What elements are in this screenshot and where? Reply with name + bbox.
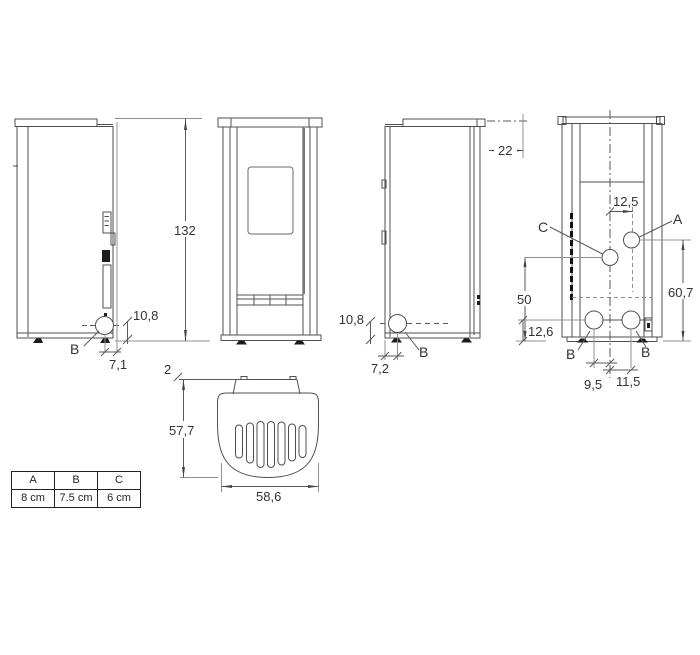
glass-door-window xyxy=(248,167,293,234)
dim-2-label: 2 xyxy=(164,362,171,377)
port-a-circle xyxy=(624,232,640,248)
port-c-circle xyxy=(602,250,618,266)
dim-10-8-left-label: 10,8 xyxy=(133,308,158,323)
spec-col-a-header: A xyxy=(12,472,55,490)
technical-drawing-canvas: 132 10,8 7,1 B xyxy=(0,0,700,655)
stove-feet xyxy=(236,341,305,345)
dim-50-label: 50 xyxy=(517,292,531,307)
dim-60-7-label: 60,7 xyxy=(668,285,693,300)
flue-outlet-circle-right xyxy=(389,315,407,333)
dim-7-1-label: 7,1 xyxy=(109,357,127,372)
rear-view: 12,5 A C 50 60,7 xyxy=(514,110,699,392)
spec-col-c-value: 6 cm xyxy=(98,490,141,508)
top-view: 2 57,7 58,6 xyxy=(164,362,319,504)
spec-col-c-header: C xyxy=(98,472,141,490)
side-view-left: 132 10,8 7,1 B xyxy=(13,119,210,373)
dim-12-5-label: 12,5 xyxy=(613,194,638,209)
dim-57-7-label: 57,7 xyxy=(169,423,194,438)
front-view xyxy=(218,118,322,345)
technical-drawing-page: 132 10,8 7,1 B xyxy=(0,0,700,655)
port-b-label-left: B xyxy=(70,341,79,357)
dim-58-6-label: 58,6 xyxy=(256,489,281,504)
spec-table-value-row: 8 cm 7.5 cm 6 cm xyxy=(12,490,141,508)
dimension-2: 2 xyxy=(164,362,252,381)
spec-table-header-row: A B C xyxy=(12,472,141,490)
port-b-rear-left-callout: B xyxy=(566,331,590,362)
dimension-10-8-left: 10,8 xyxy=(123,308,158,344)
spec-col-b-value: 7.5 cm xyxy=(55,490,98,508)
port-b-rear-left-label: B xyxy=(566,346,575,362)
port-b-circle-right xyxy=(622,311,640,329)
port-b-callout-right: B xyxy=(405,332,428,360)
dimension-58-6: 58,6 xyxy=(222,463,319,504)
air-grille-slots xyxy=(236,422,307,468)
dim-11-5-label: 11,5 xyxy=(616,374,640,389)
dim-7-2-label: 7,2 xyxy=(371,361,389,376)
port-b-circle-left xyxy=(585,311,603,329)
stove-feet xyxy=(391,339,472,343)
dim-9-5-label: 9,5 xyxy=(584,377,602,392)
dimension-7-1: 7,1 xyxy=(99,348,127,372)
dimension-12-5: 12,5 xyxy=(606,194,638,216)
port-b-label-right: B xyxy=(419,344,428,360)
dimension-11-5: 11,5 xyxy=(603,366,640,389)
spec-col-a-value: 8 cm xyxy=(12,490,55,508)
side-view-right: 22 10,8 7,2 B xyxy=(339,114,528,376)
port-b-rear-right-callout: B xyxy=(636,331,650,360)
spec-table: A B C 8 cm 7.5 cm 6 cm xyxy=(11,471,141,508)
dim-12-6-label: 12,6 xyxy=(528,324,553,339)
port-b-callout-left: B xyxy=(70,331,99,357)
dim-10-8-right-label: 10,8 xyxy=(339,312,364,327)
dim-22-label: 22 xyxy=(498,143,512,158)
port-c-label: C xyxy=(538,219,548,235)
dim-132-label: 132 xyxy=(174,223,196,238)
spec-col-b-header: B xyxy=(55,472,98,490)
port-b-rear-right-label: B xyxy=(641,344,650,360)
port-a-callout: A xyxy=(640,211,684,237)
dimension-10-8-right: 10,8 xyxy=(339,312,375,344)
dimension-57-7: 57,7 xyxy=(166,380,218,478)
port-a-label: A xyxy=(673,211,683,227)
